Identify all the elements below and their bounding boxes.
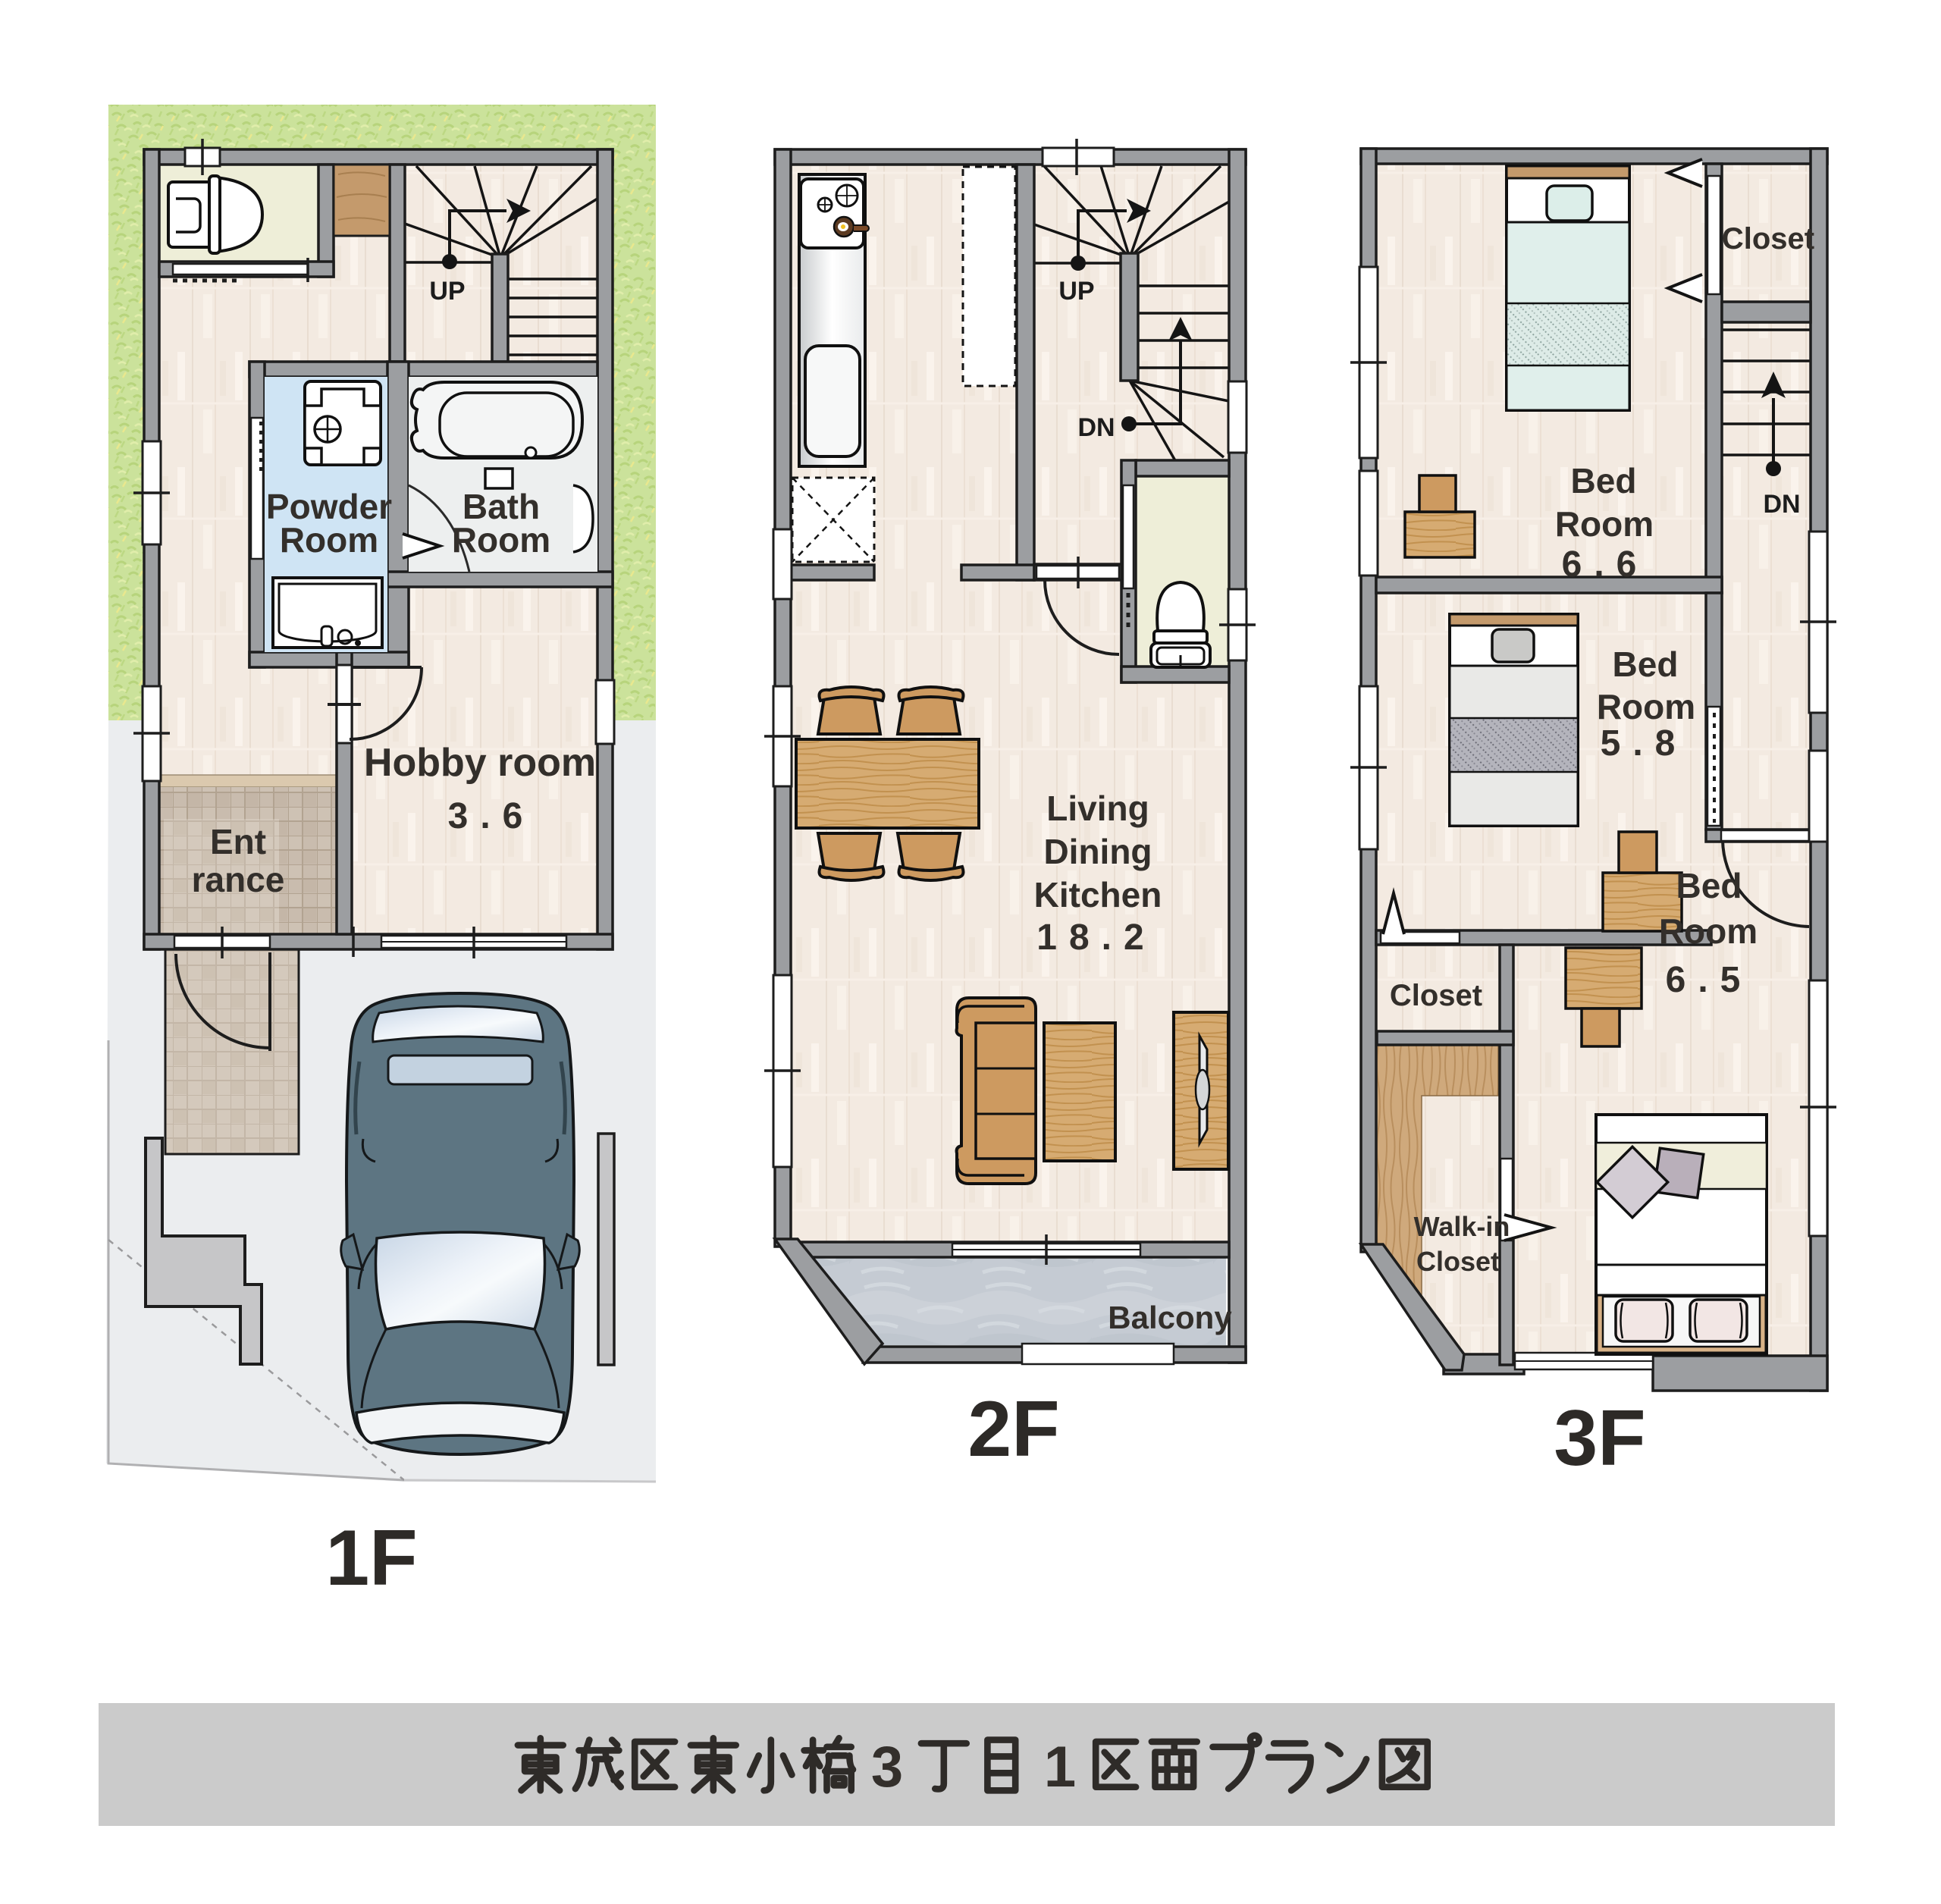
svg-text:Walk-in: Walk-in: [1414, 1211, 1510, 1242]
svg-text:3F: 3F: [1554, 1394, 1645, 1482]
svg-text:Room: Room: [1555, 504, 1654, 544]
svg-text:Balcony: Balcony: [1108, 1300, 1232, 1335]
svg-text:3: 3: [871, 1735, 903, 1799]
svg-text:5.8: 5.8: [1601, 723, 1688, 764]
svg-text:Closet: Closet: [1416, 1246, 1500, 1277]
svg-text:UP: UP: [429, 277, 465, 306]
svg-text:3.6: 3.6: [448, 796, 535, 836]
svg-text:Closet: Closet: [1722, 222, 1814, 256]
svg-text:UP: UP: [1058, 277, 1094, 306]
svg-text:Living: Living: [1046, 789, 1149, 828]
svg-text:Dining: Dining: [1043, 832, 1152, 871]
svg-text:Kitchen: Kitchen: [1034, 875, 1162, 914]
svg-text:Room: Room: [280, 520, 378, 560]
svg-text:Bed: Bed: [1571, 461, 1637, 500]
svg-text:Room: Room: [1597, 687, 1695, 726]
svg-text:DN: DN: [1763, 490, 1800, 519]
svg-text:Room: Room: [452, 520, 550, 560]
svg-text:Bed: Bed: [1676, 866, 1742, 905]
svg-text:2F: 2F: [967, 1385, 1059, 1473]
svg-text:6.5: 6.5: [1666, 960, 1753, 1000]
svg-text:6.6: 6.6: [1562, 544, 1649, 585]
svg-text:Closet: Closet: [1390, 979, 1482, 1012]
svg-text:DN: DN: [1077, 413, 1115, 442]
svg-text:1: 1: [1044, 1735, 1076, 1799]
svg-text:Room: Room: [1659, 911, 1758, 951]
svg-text:Ent: Ent: [210, 822, 266, 861]
svg-text:18.2: 18.2: [1036, 917, 1156, 958]
svg-text:Bed: Bed: [1613, 645, 1679, 684]
svg-text:1F: 1F: [325, 1514, 417, 1602]
svg-text:Hobby room: Hobby room: [364, 741, 596, 785]
svg-text:rance: rance: [192, 860, 285, 899]
